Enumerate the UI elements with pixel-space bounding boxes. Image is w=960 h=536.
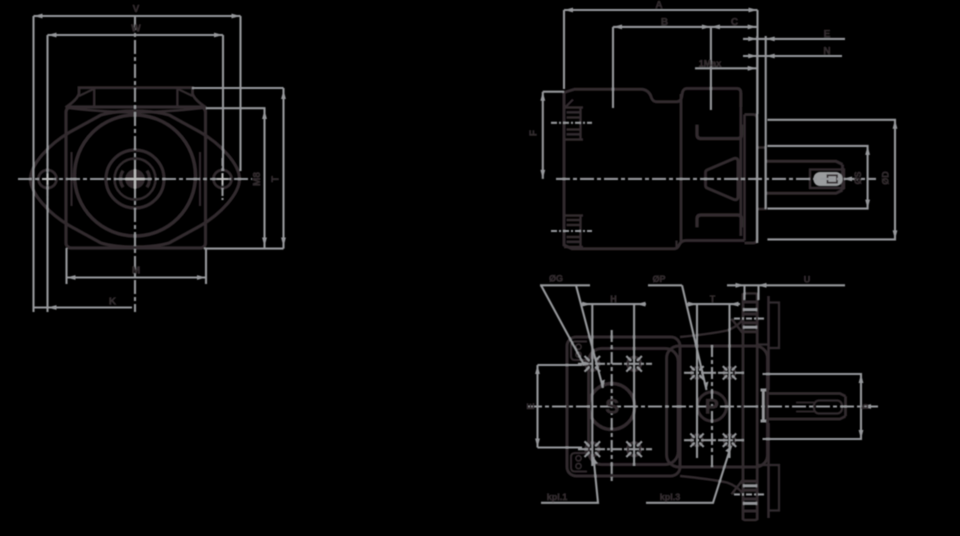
svg-text:K: K [109, 297, 117, 308]
svg-text:1Max: 1Max [699, 59, 722, 69]
svg-text:B: B [661, 17, 668, 28]
svg-text:kpl.1: kpl.1 [547, 492, 568, 502]
svg-text:kpl.3: kpl.3 [660, 492, 681, 502]
svg-text:W: W [131, 24, 141, 35]
svg-text:M: M [132, 266, 140, 277]
svg-text:b: b [860, 403, 870, 409]
svg-text:T: T [271, 176, 282, 182]
svg-text:T: T [710, 294, 716, 304]
svg-text:M8: M8 [252, 172, 263, 186]
svg-text:ØP: ØP [652, 274, 665, 284]
svg-text:U: U [804, 275, 811, 285]
svg-text:V: V [133, 4, 140, 15]
svg-text:P: P [705, 395, 719, 418]
svg-text:C: C [731, 17, 738, 28]
svg-text:H: H [610, 294, 617, 304]
svg-text:ØG: ØG [549, 274, 563, 284]
svg-text:N: N [823, 46, 830, 57]
svg-text:ØS: ØS [853, 171, 863, 184]
svg-text:S: S [605, 395, 619, 418]
svg-text:A: A [655, 0, 662, 11]
svg-text:F: F [529, 130, 540, 136]
svg-text:E: E [824, 29, 831, 40]
svg-text:E: E [526, 403, 537, 410]
svg-text:ØD: ØD [881, 171, 891, 185]
